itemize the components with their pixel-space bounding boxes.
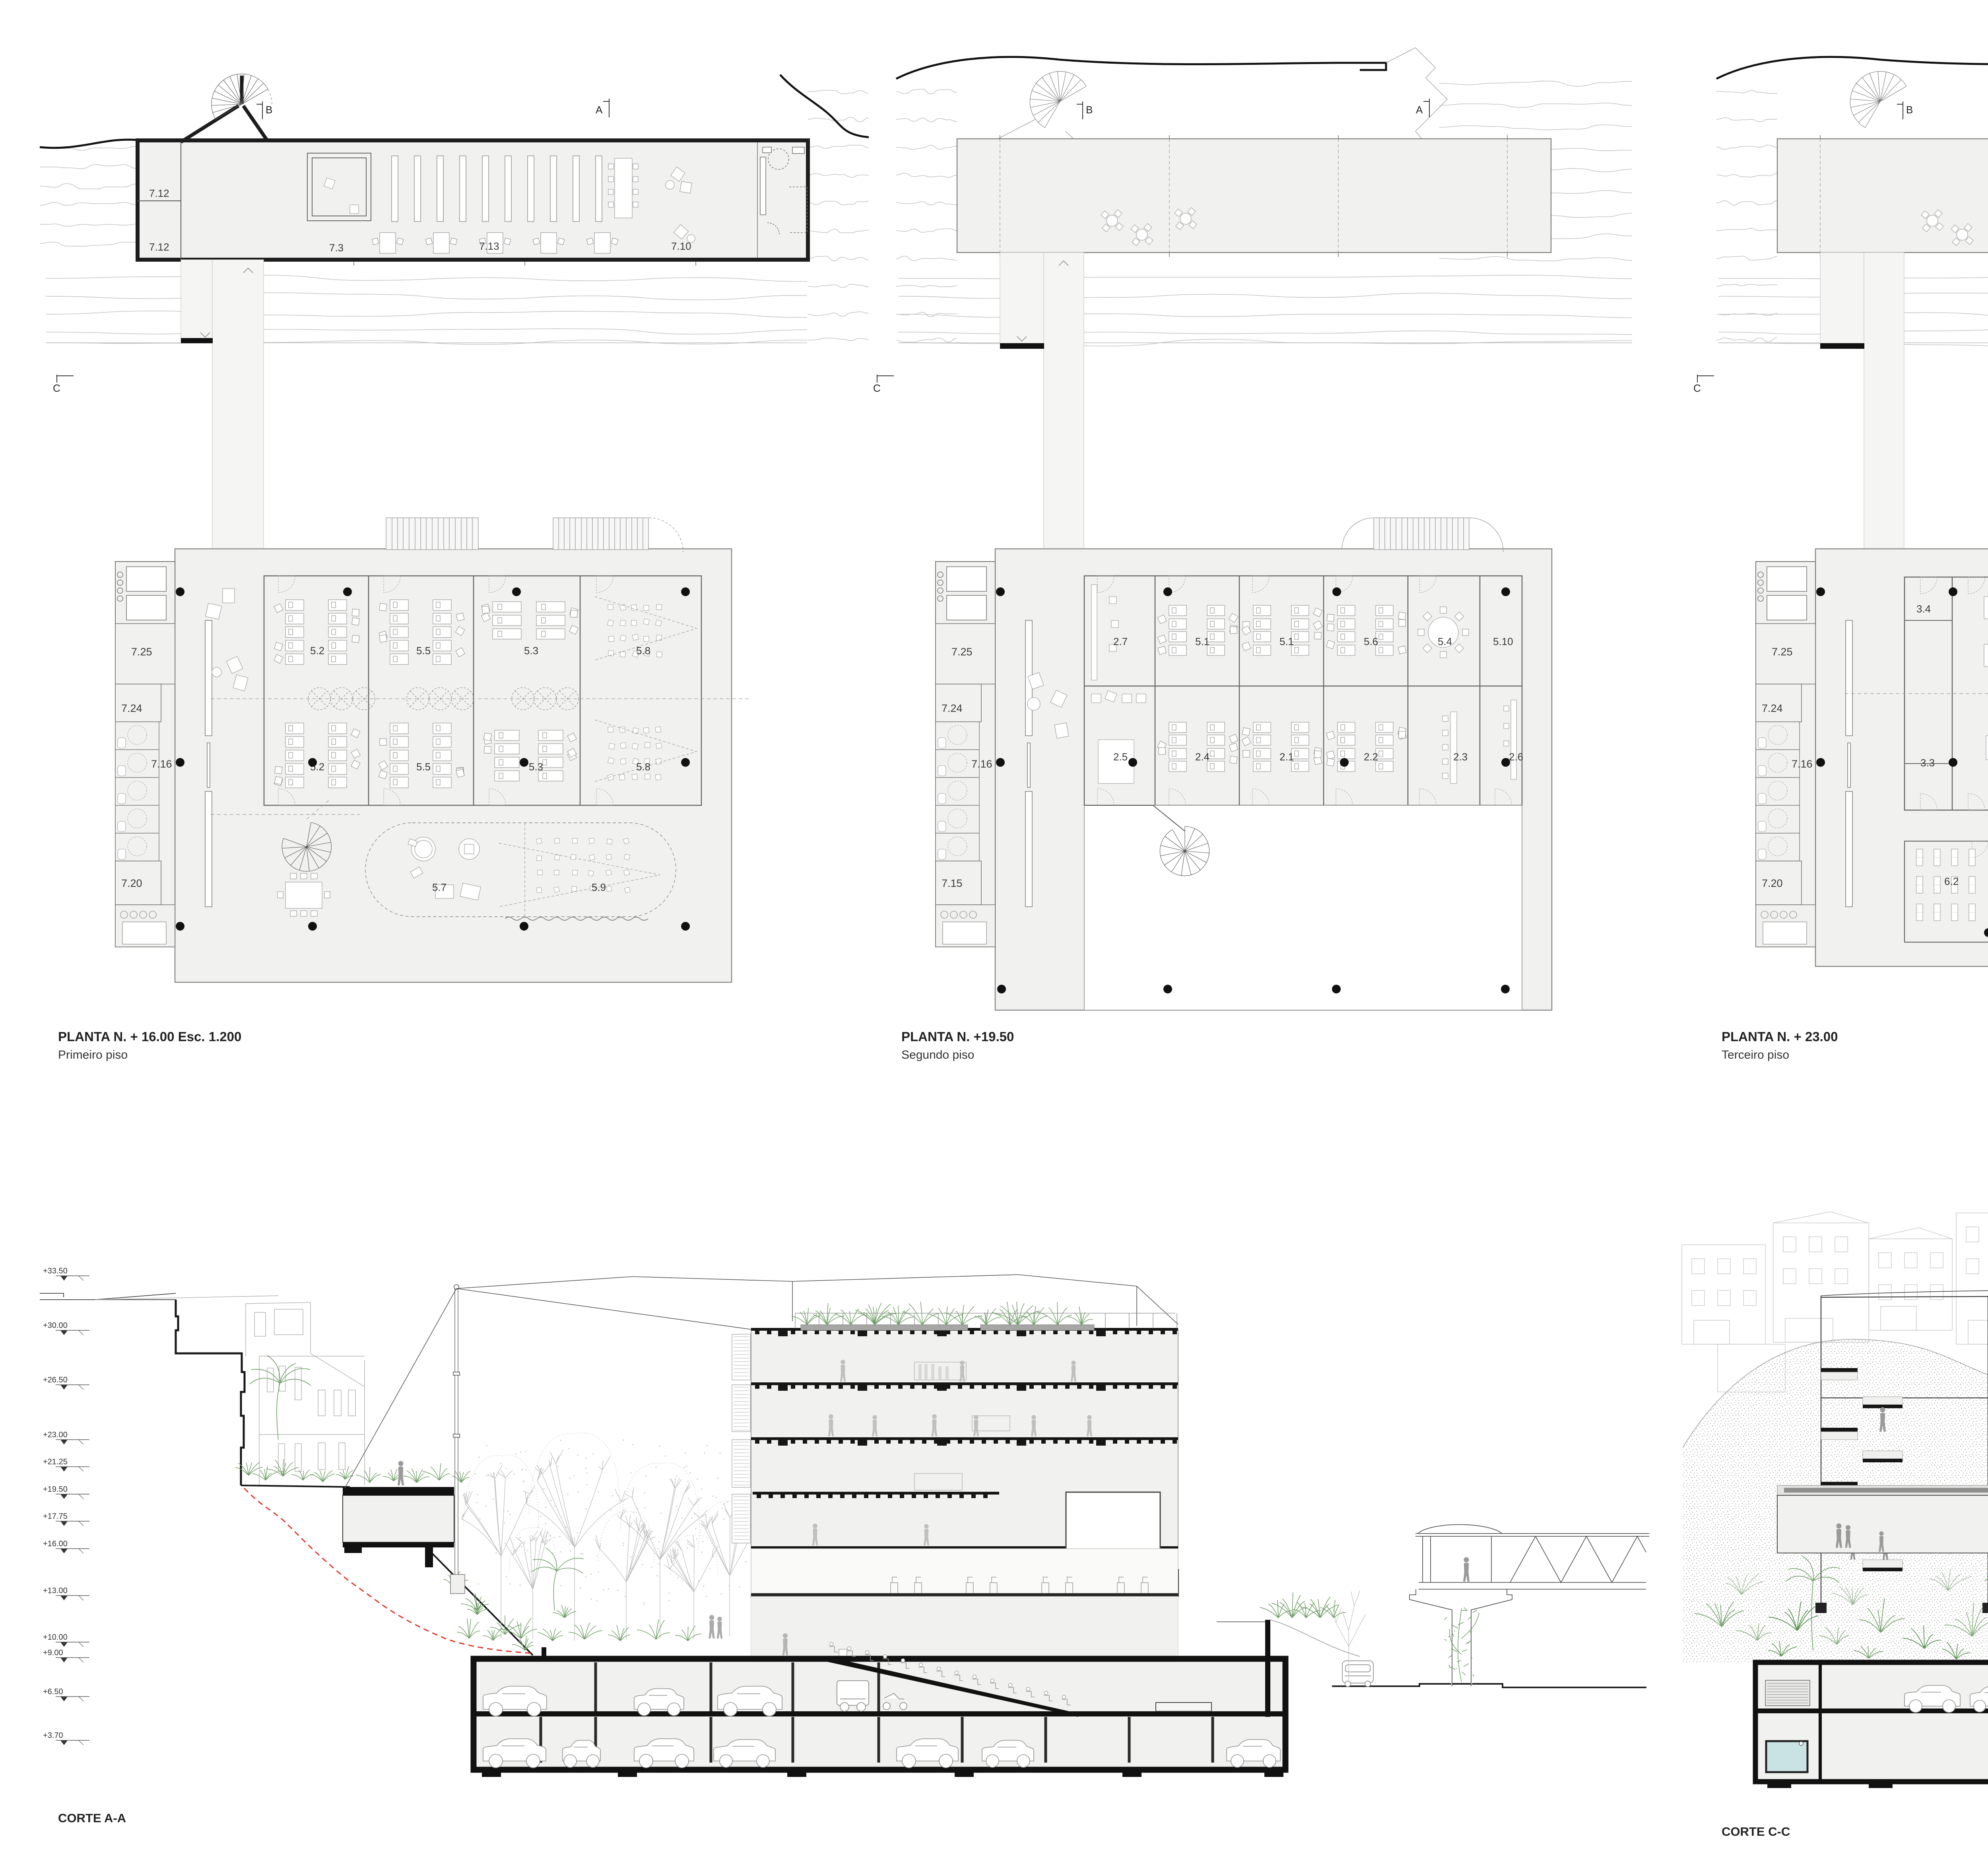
svg-text:7.24: 7.24 bbox=[121, 702, 142, 714]
svg-text:7.10: 7.10 bbox=[671, 240, 691, 252]
svg-text:C: C bbox=[1693, 382, 1701, 394]
svg-text:7.3: 7.3 bbox=[329, 242, 344, 254]
svg-text:5.5: 5.5 bbox=[416, 761, 431, 773]
svg-text:5.3: 5.3 bbox=[529, 761, 543, 773]
svg-text:B: B bbox=[266, 104, 272, 116]
svg-text:+10.00: +10.00 bbox=[43, 1633, 68, 1642]
svg-text:PLANTA N. + 16.00 Esc. 1.200: PLANTA N. + 16.00 Esc. 1.200 bbox=[58, 1029, 241, 1044]
svg-text:7.16: 7.16 bbox=[151, 758, 172, 770]
svg-text:PLANTA N. +19.50: PLANTA N. +19.50 bbox=[901, 1029, 1014, 1044]
svg-text:A: A bbox=[596, 104, 603, 116]
svg-text:2.1: 2.1 bbox=[1279, 751, 1294, 763]
svg-text:5.1: 5.1 bbox=[1279, 636, 1294, 647]
svg-text:+19.50: +19.50 bbox=[43, 1485, 68, 1494]
svg-text:B: B bbox=[1086, 104, 1093, 116]
svg-text:5.1: 5.1 bbox=[1195, 636, 1209, 647]
svg-text:2.2: 2.2 bbox=[1364, 751, 1378, 763]
svg-text:2.7: 2.7 bbox=[1113, 636, 1128, 647]
svg-text:7.24: 7.24 bbox=[942, 702, 963, 714]
svg-text:2.4: 2.4 bbox=[1195, 751, 1209, 763]
svg-text:CORTE C-C: CORTE C-C bbox=[1722, 1825, 1790, 1839]
svg-text:7.25: 7.25 bbox=[951, 646, 973, 658]
svg-text:5.4: 5.4 bbox=[1438, 636, 1452, 647]
svg-text:7.25: 7.25 bbox=[1772, 646, 1793, 658]
svg-text:+16.00: +16.00 bbox=[43, 1539, 68, 1548]
svg-text:7.13: 7.13 bbox=[479, 240, 499, 252]
svg-text:+30.00: +30.00 bbox=[43, 1321, 68, 1330]
svg-text:5.10: 5.10 bbox=[1493, 636, 1513, 647]
svg-text:7.16: 7.16 bbox=[1792, 758, 1813, 770]
svg-text:6.2: 6.2 bbox=[1944, 875, 1959, 887]
svg-text:5.6: 5.6 bbox=[1364, 636, 1378, 647]
svg-text:5.5: 5.5 bbox=[416, 645, 431, 657]
svg-text:Primeiro piso: Primeiro piso bbox=[58, 1048, 128, 1061]
svg-text:C: C bbox=[873, 382, 881, 394]
svg-text:7.25: 7.25 bbox=[131, 646, 152, 658]
svg-text:7.20: 7.20 bbox=[121, 877, 142, 889]
svg-text:5.9: 5.9 bbox=[592, 881, 606, 893]
svg-text:2.3: 2.3 bbox=[1453, 751, 1468, 763]
svg-text:+9.00: +9.00 bbox=[43, 1648, 63, 1657]
svg-text:+13.00: +13.00 bbox=[43, 1586, 68, 1595]
svg-text:7.24: 7.24 bbox=[1762, 702, 1783, 714]
svg-text:+17.75: +17.75 bbox=[43, 1512, 68, 1521]
svg-text:+3.70: +3.70 bbox=[43, 1731, 63, 1740]
svg-text:A: A bbox=[1416, 104, 1423, 116]
svg-text:+33.50: +33.50 bbox=[43, 1267, 68, 1275]
svg-text:C: C bbox=[53, 382, 60, 394]
svg-text:2.6: 2.6 bbox=[1509, 751, 1523, 763]
svg-text:5.3: 5.3 bbox=[524, 645, 538, 657]
svg-text:+21.25: +21.25 bbox=[43, 1458, 68, 1466]
svg-text:+23.00: +23.00 bbox=[43, 1431, 68, 1439]
svg-text:+26.50: +26.50 bbox=[43, 1376, 68, 1384]
svg-text:7.16: 7.16 bbox=[971, 758, 992, 770]
svg-text:PLANTA N. + 23.00: PLANTA N. + 23.00 bbox=[1722, 1029, 1838, 1044]
svg-text:7.12: 7.12 bbox=[149, 187, 169, 199]
svg-text:+6.50: +6.50 bbox=[43, 1687, 63, 1696]
svg-text:CORTE A-A: CORTE A-A bbox=[58, 1811, 126, 1825]
svg-text:B: B bbox=[1906, 104, 1913, 116]
svg-text:5.7: 5.7 bbox=[432, 881, 447, 893]
svg-text:Terceiro piso: Terceiro piso bbox=[1722, 1048, 1789, 1061]
svg-text:Segundo piso: Segundo piso bbox=[901, 1048, 975, 1061]
svg-text:7.12: 7.12 bbox=[149, 241, 169, 253]
svg-text:5.8: 5.8 bbox=[636, 761, 650, 773]
svg-text:2.5: 2.5 bbox=[1113, 751, 1128, 763]
svg-text:3.4: 3.4 bbox=[1916, 603, 1931, 615]
svg-text:3.3: 3.3 bbox=[1920, 757, 1935, 769]
svg-text:7.20: 7.20 bbox=[1762, 877, 1783, 889]
svg-text:5.8: 5.8 bbox=[636, 645, 650, 657]
svg-text:5.2: 5.2 bbox=[310, 645, 324, 657]
svg-text:7.15: 7.15 bbox=[942, 877, 963, 889]
